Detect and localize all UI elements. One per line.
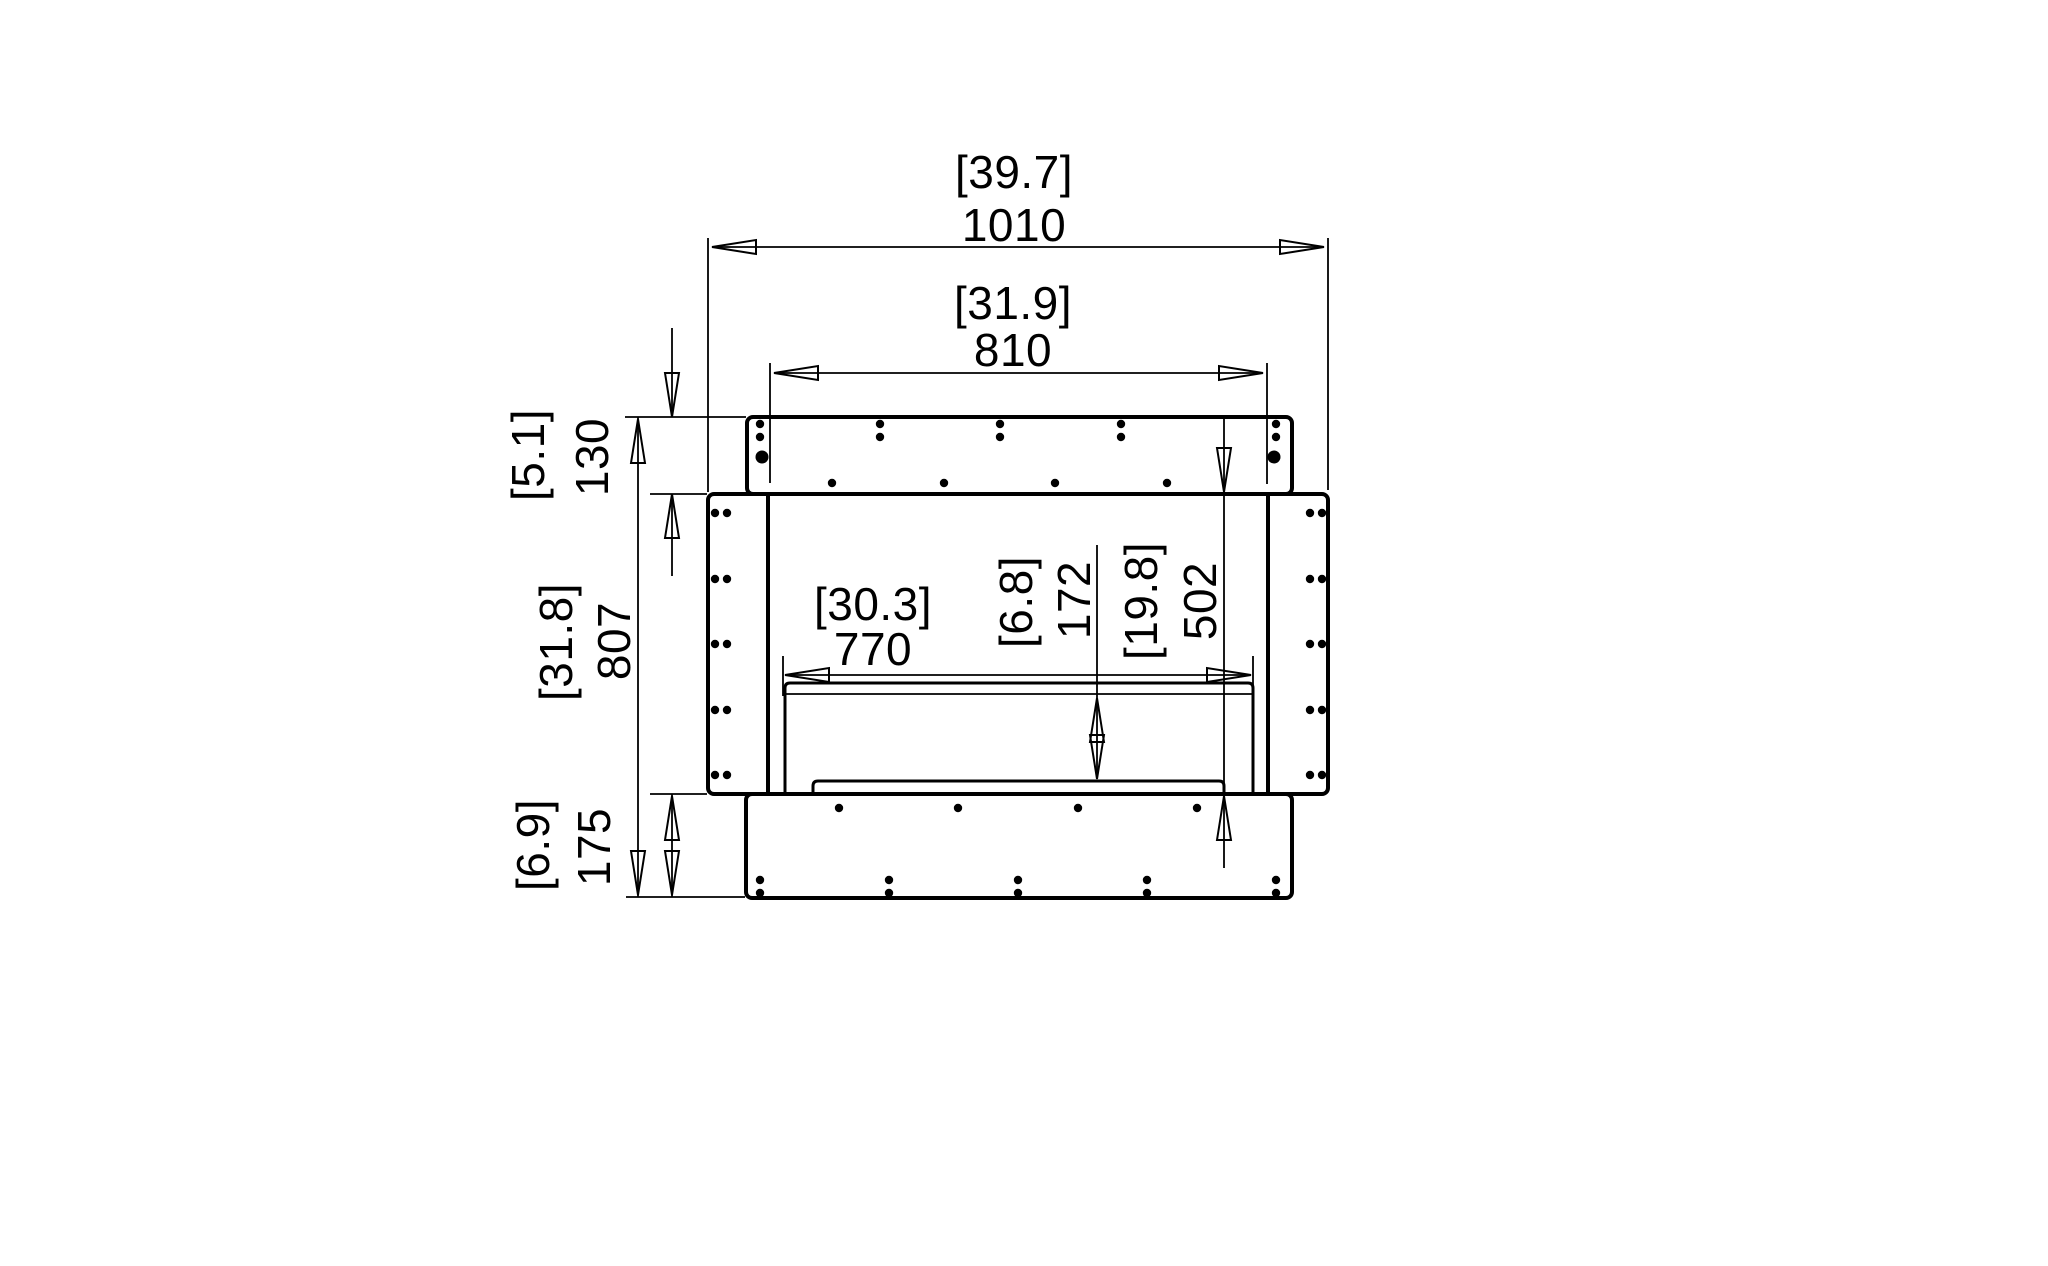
dim-overall-height-mm: 807	[588, 602, 640, 680]
screw-hole	[711, 771, 719, 779]
screw-hole	[835, 804, 843, 812]
screw-hole	[1306, 706, 1314, 714]
screw-hole	[1306, 771, 1314, 779]
screw-hole	[1306, 575, 1314, 583]
screw-hole	[1272, 876, 1280, 884]
screw-hole	[876, 420, 884, 428]
dim-opening-width-mm: 810	[974, 324, 1052, 376]
screw-hole	[1143, 889, 1151, 897]
screw-hole	[1318, 706, 1326, 714]
screw-hole	[1272, 889, 1280, 897]
screw-hole	[756, 889, 764, 897]
screw-hole	[828, 479, 836, 487]
screw-hole	[1318, 640, 1326, 648]
screw-hole	[711, 575, 719, 583]
screw-hole	[1272, 433, 1280, 441]
screw-hole	[1306, 640, 1314, 648]
screw-hole	[1051, 479, 1059, 487]
screw-hole	[711, 509, 719, 517]
screw-hole	[723, 706, 731, 714]
dim-burner-width-mm: 770	[834, 623, 912, 675]
screw-hole	[1117, 433, 1125, 441]
dim-opening-width-inches: [31.9]	[954, 277, 1072, 329]
screw-hole	[711, 640, 719, 648]
dim-opening-height-inches: [19.8]	[1115, 542, 1167, 660]
screw-hole	[1318, 575, 1326, 583]
screw-hole	[756, 876, 764, 884]
dim-overall-width-mm: 1010	[962, 199, 1066, 251]
screw-hole	[1318, 771, 1326, 779]
screw-hole	[1014, 876, 1022, 884]
dim-burner-clearance-inches: [6.8]	[990, 556, 1042, 648]
screw-hole	[885, 889, 893, 897]
dim-overall-height-inches: [31.8]	[530, 583, 582, 701]
dim-overall-width-inches: [39.7]	[955, 146, 1073, 198]
screw-hole	[756, 433, 764, 441]
screw-hole	[1306, 509, 1314, 517]
screw-hole	[1193, 804, 1201, 812]
screw-hole	[1318, 509, 1326, 517]
screw-hole	[1014, 889, 1022, 897]
screw-hole	[1268, 451, 1281, 464]
screw-hole	[711, 706, 719, 714]
screw-hole	[1117, 420, 1125, 428]
screw-hole	[876, 433, 884, 441]
dim-base-height-inches: [6.9]	[507, 799, 559, 891]
dim-base-height-mm: 175	[568, 808, 620, 886]
screw-hole	[723, 509, 731, 517]
dim-opening-height-mm: 502	[1174, 562, 1226, 640]
firebox-dimension-drawing: [39.7] 1010 [31.9] 810 [30.3] 770 [5.1] …	[0, 0, 2048, 1266]
dim-burner-clearance-mm: 172	[1048, 561, 1100, 639]
screw-hole	[723, 771, 731, 779]
firebox-body	[708, 417, 1328, 898]
screw-hole	[885, 876, 893, 884]
screw-hole	[1074, 804, 1082, 812]
screw-hole	[756, 451, 769, 464]
drawing-canvas: [39.7] 1010 [31.9] 810 [30.3] 770 [5.1] …	[0, 0, 2048, 1266]
screw-hole	[756, 420, 764, 428]
dim-top-flange-mm: 130	[566, 418, 618, 496]
dim-top-flange-inches: [5.1]	[502, 409, 554, 501]
screw-hole	[996, 420, 1004, 428]
screw-hole	[940, 479, 948, 487]
screw-hole	[1143, 876, 1151, 884]
screw-hole	[1163, 479, 1171, 487]
screw-hole	[996, 433, 1004, 441]
screw-hole	[723, 575, 731, 583]
screw-hole	[723, 640, 731, 648]
screw-hole	[1272, 420, 1280, 428]
screw-hole	[954, 804, 962, 812]
